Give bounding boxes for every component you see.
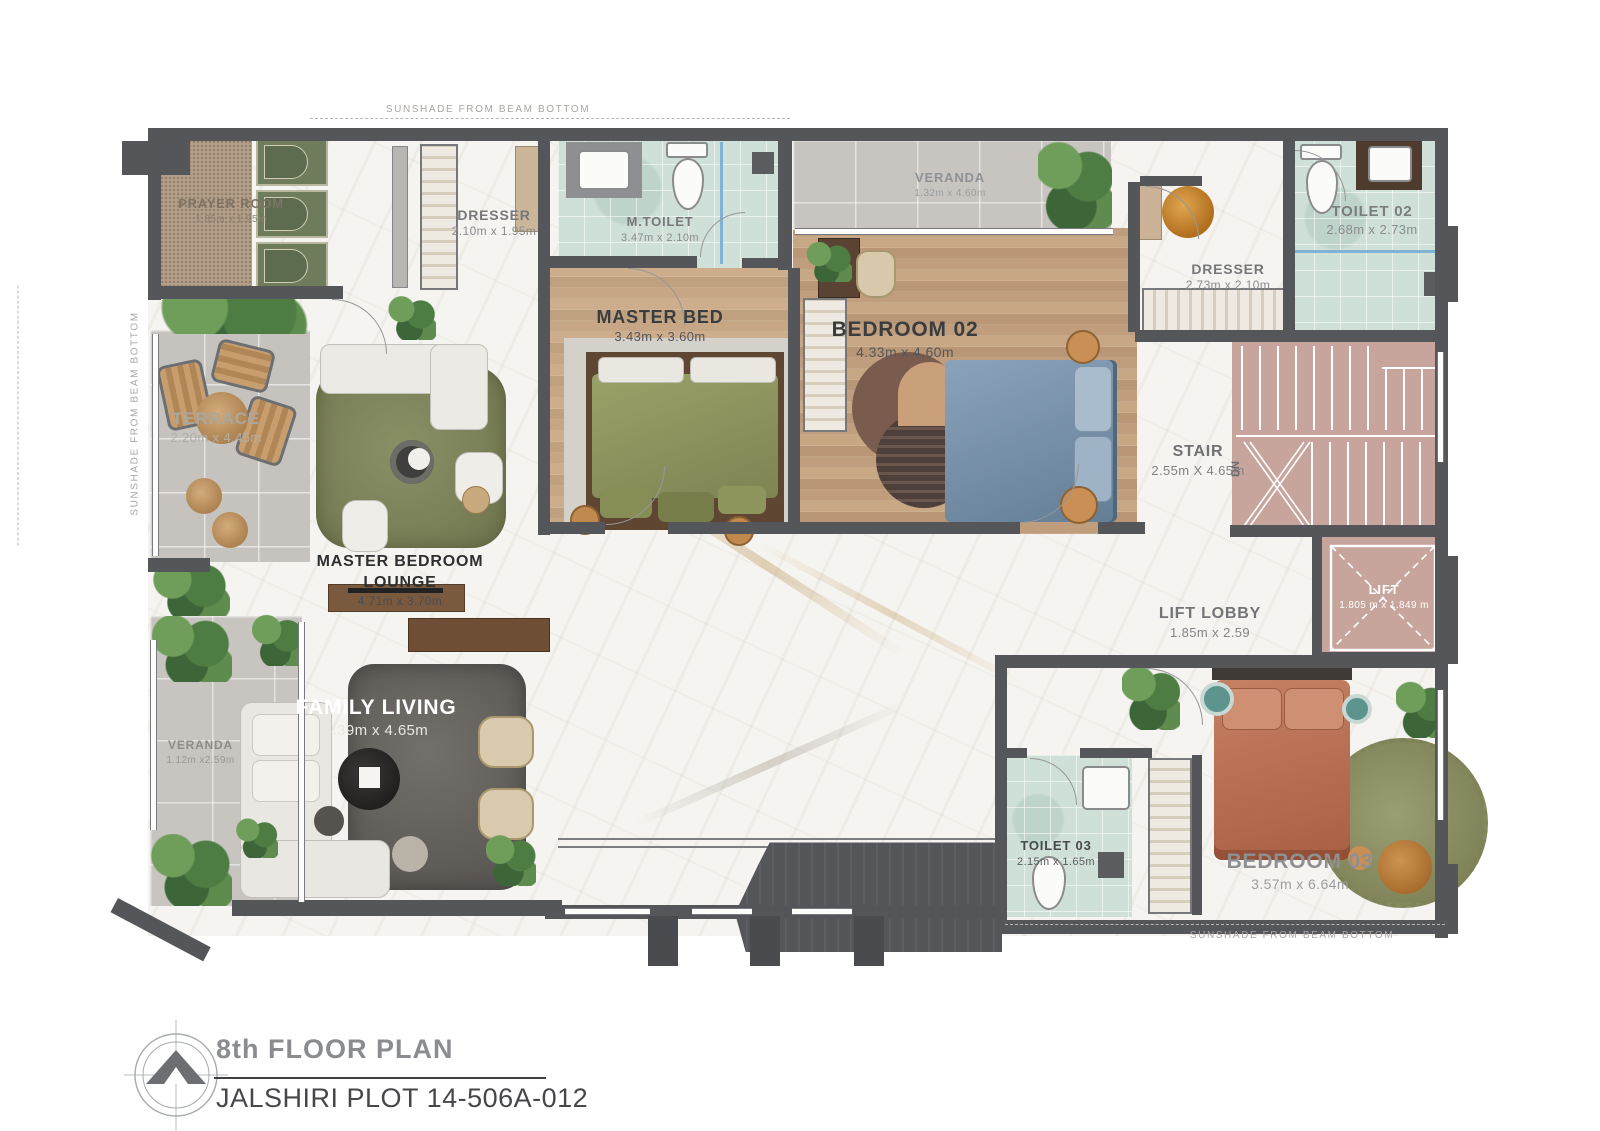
rattan-chair bbox=[478, 716, 534, 768]
column-stub bbox=[648, 916, 678, 966]
accent-pillow bbox=[658, 492, 714, 522]
plan-title-text: 8th FLOOR PLAN bbox=[216, 1034, 454, 1064]
pouf bbox=[314, 806, 344, 836]
wall-stub-left bbox=[148, 558, 210, 572]
terrace-table bbox=[196, 392, 248, 444]
window-bedroom02-top bbox=[795, 228, 1113, 235]
pillow bbox=[598, 357, 684, 383]
planter-foliage bbox=[150, 616, 232, 682]
wall-dresser02-left bbox=[1128, 182, 1140, 332]
mirror-panel bbox=[392, 146, 408, 288]
window-bottom bbox=[792, 908, 852, 915]
wall-toilet03-left bbox=[995, 655, 1007, 920]
rattan-chair bbox=[478, 788, 534, 840]
lounge-sofa-return bbox=[430, 344, 488, 430]
plant bbox=[388, 296, 436, 340]
wardrobe-bedroom02 bbox=[803, 298, 847, 432]
deco-circle bbox=[1200, 682, 1234, 716]
shower-head bbox=[752, 152, 774, 174]
sunshade-note-top: SUNSHADE FROM BEAM BOTTOM bbox=[368, 104, 608, 115]
sunshade-note-top-text: SUNSHADE FROM BEAM BOTTOM bbox=[386, 104, 590, 115]
terrace-stool bbox=[186, 478, 222, 514]
wall-left-upper bbox=[148, 128, 161, 300]
wall-toilet03-top2 bbox=[1080, 748, 1152, 758]
window-bottom bbox=[565, 908, 650, 915]
rattan-chair bbox=[856, 250, 896, 298]
prayer-mat bbox=[256, 242, 328, 290]
window-bottom bbox=[692, 908, 752, 915]
wall-stair-top bbox=[1135, 330, 1448, 342]
sofa-cushion bbox=[252, 714, 320, 756]
plant bbox=[236, 818, 278, 858]
stair-direction: DN bbox=[1230, 454, 1244, 484]
wall-stair-bottom bbox=[1230, 525, 1448, 537]
prayer-mat-arch bbox=[264, 197, 308, 231]
lounge-bowl bbox=[408, 448, 430, 470]
column-stub bbox=[854, 916, 884, 966]
prayer-mat-arch bbox=[264, 145, 308, 179]
wall-dresser02-top bbox=[1140, 176, 1202, 186]
wall-hall-top3 bbox=[798, 522, 1020, 534]
plan-title: 8th FLOOR PLAN bbox=[216, 1034, 454, 1065]
wall-hall-top1 bbox=[545, 522, 605, 534]
wall-lift-left bbox=[1312, 537, 1322, 663]
lounge-chair bbox=[342, 500, 388, 552]
sunshade-line-top bbox=[310, 118, 790, 119]
wall-hall-top2 bbox=[668, 522, 798, 534]
wall-bottom-left bbox=[232, 900, 562, 916]
window-right bbox=[1437, 352, 1444, 462]
sofa-cushion bbox=[252, 760, 320, 802]
side-table bbox=[462, 486, 490, 514]
wall-hall-top4 bbox=[1098, 522, 1145, 534]
prayer-mat bbox=[256, 190, 328, 238]
wall-masterbed-left bbox=[538, 270, 550, 535]
plant bbox=[252, 614, 304, 666]
terrace-edge bbox=[152, 334, 159, 556]
stool bbox=[1348, 846, 1372, 870]
wall-top bbox=[148, 128, 1448, 141]
pillow bbox=[1074, 366, 1112, 432]
dresser02-cabinet bbox=[1142, 288, 1290, 332]
sunshade-note-bottom-text: SUNSHADE FROM BEAM BOTTOM bbox=[1190, 930, 1394, 941]
plan-subtitle: JALSHIRI PLOT 14-506A-012 bbox=[216, 1083, 588, 1114]
wardrobe-bedroom03 bbox=[1148, 758, 1192, 914]
lift-cab bbox=[1322, 537, 1444, 659]
sunshade-note-left: SUNSHADE FROM BEAM BOTTOM bbox=[130, 289, 141, 539]
floor-plan: SUNSHADE FROM BEAM BOTTOM SUNSHADE FROM … bbox=[0, 0, 1600, 1131]
wall-bump-right bbox=[1442, 226, 1458, 302]
railing-line bbox=[558, 838, 1000, 840]
plan-subtitle-text: JALSHIRI PLOT 14-506A-012 bbox=[216, 1083, 588, 1113]
prayer-mat-arch bbox=[264, 249, 308, 283]
pillow bbox=[690, 357, 776, 383]
shower-glass bbox=[1290, 250, 1446, 253]
toilet-tank bbox=[666, 142, 708, 158]
planter-foliage bbox=[1038, 138, 1112, 230]
stair-direction-text: DN bbox=[1230, 461, 1242, 477]
accent-pillow bbox=[718, 486, 766, 514]
shower-head bbox=[1098, 852, 1124, 878]
tv-screen bbox=[348, 588, 443, 593]
wall-corridor bbox=[538, 138, 550, 272]
title-divider bbox=[214, 1077, 546, 1079]
pouf bbox=[392, 836, 428, 872]
sunshade-line-bottom bbox=[1005, 924, 1445, 925]
pillow bbox=[1284, 688, 1344, 730]
deco-circle bbox=[1342, 694, 1372, 724]
terrace-stool bbox=[212, 512, 248, 548]
sink-basin bbox=[1082, 766, 1130, 810]
wall-toilet02-left bbox=[1283, 140, 1295, 336]
stool bbox=[1066, 330, 1100, 364]
column-stub bbox=[750, 916, 780, 966]
sunshade-note-bottom: SUNSHADE FROM BEAM BOTTOM bbox=[1172, 930, 1412, 941]
wardrobe-master bbox=[420, 144, 458, 290]
planter-foliage bbox=[806, 242, 852, 282]
table-logo-card bbox=[358, 766, 381, 789]
bedroom03-chair bbox=[1378, 840, 1432, 894]
wall-prayer-bottom bbox=[148, 286, 343, 299]
family-console bbox=[408, 618, 550, 652]
prayer-mat bbox=[256, 138, 328, 186]
window-veranda-left bbox=[150, 640, 157, 830]
sunshade-note-left-text: SUNSHADE FROM BEAM BOTTOM bbox=[130, 311, 141, 515]
terrace-hedge bbox=[150, 296, 310, 334]
stair-treads bbox=[1232, 342, 1444, 530]
wall-mtoilet-right bbox=[778, 138, 792, 270]
plant bbox=[486, 834, 536, 886]
wall-bedrooms-divider bbox=[788, 268, 800, 534]
wall-wardrobe03-right bbox=[1192, 755, 1202, 915]
sink-basin bbox=[578, 150, 630, 190]
wall-bump-right bbox=[1442, 556, 1458, 664]
planter-foliage bbox=[150, 834, 232, 906]
wall-mtoilet-bottom bbox=[545, 256, 697, 268]
window-family-left bbox=[298, 622, 305, 902]
sunshade-line-left bbox=[18, 286, 19, 546]
wall-toilet03-top1 bbox=[995, 748, 1027, 758]
sink-basin bbox=[1368, 146, 1412, 182]
window-right bbox=[1437, 690, 1444, 820]
wall-bedroom03-top bbox=[995, 655, 1448, 668]
